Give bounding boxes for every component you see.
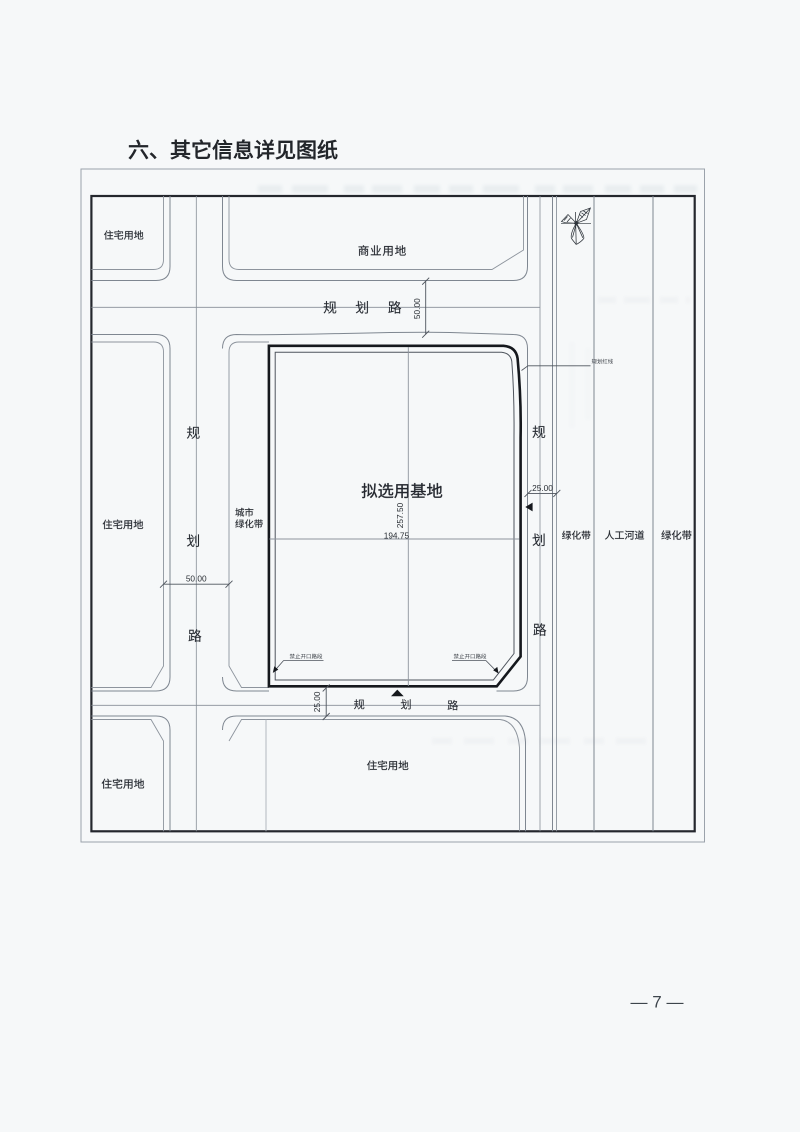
svg-text:25.00: 25.00 bbox=[312, 691, 322, 712]
svg-text:50.00: 50.00 bbox=[412, 298, 422, 319]
svg-text:194.75: 194.75 bbox=[384, 531, 410, 541]
svg-text:— 7 —: — 7 — bbox=[631, 993, 684, 1012]
svg-text:25.00: 25.00 bbox=[532, 483, 553, 493]
svg-text:257.50: 257.50 bbox=[395, 502, 405, 528]
svg-text:50.00: 50.00 bbox=[186, 574, 207, 584]
